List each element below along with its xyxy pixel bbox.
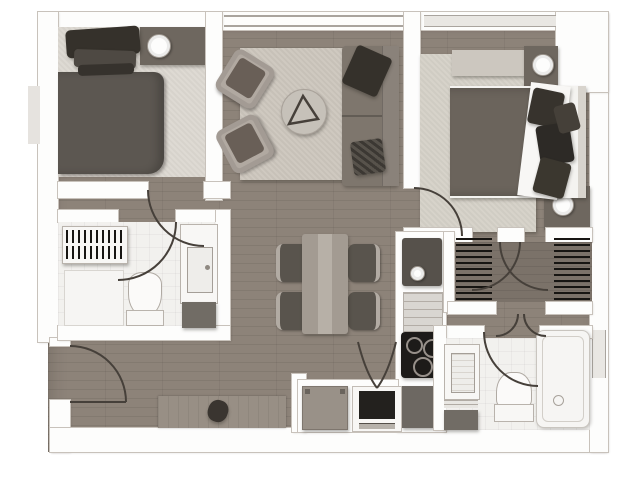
bathroom-2-window	[592, 330, 606, 378]
cooktop-burner	[406, 337, 423, 354]
bedroom-1-bolster-pillow	[78, 63, 134, 76]
bathroom-2-vanity	[444, 344, 480, 400]
wardrobe-rail-hangers	[66, 246, 122, 259]
dining-table	[302, 234, 348, 334]
oven-door	[359, 391, 395, 419]
floor-plan	[0, 0, 640, 484]
bedroom-1-bottom-wall	[58, 182, 148, 198]
bathtub-inner	[542, 336, 584, 422]
bedroom-2-bottom-wall-mid	[498, 228, 524, 242]
oven-vent	[359, 423, 395, 429]
bathtub	[536, 330, 590, 428]
bedroom-1-bottom-wall-stub	[204, 182, 230, 198]
bathroom-2-dark-mat	[444, 410, 478, 430]
bathroom-2-shelf	[444, 400, 478, 408]
bathroom-1-right-wall	[216, 210, 230, 340]
outer-wall-notch-top-right	[556, 12, 608, 92]
wall-bedroom1-living	[206, 12, 222, 200]
outer-wall-notch-left	[28, 86, 40, 144]
bathroom-2-sink	[451, 353, 475, 393]
bathroom-1-dark-mat	[182, 302, 216, 328]
bedroom-2-headboard	[578, 86, 586, 198]
bathroom-1-faucet	[205, 265, 210, 270]
bedroom-2-window	[424, 15, 556, 27]
bedroom-2-table-lamp-top	[532, 54, 554, 76]
bathroom-1-top-wall	[58, 210, 118, 222]
closet-hanging-rail-left	[456, 238, 492, 300]
armchair-seat	[224, 57, 266, 100]
kitchen-faucet	[410, 266, 425, 281]
cooktop-burner	[413, 357, 433, 377]
bathroom-2-toilet-tank	[494, 404, 534, 422]
bedroom-1-bed-duvet	[58, 72, 164, 174]
closet-bottom-wall-left	[448, 302, 496, 314]
sofa-cushion-seam	[342, 115, 382, 117]
washer-hinge	[340, 389, 345, 394]
bathtub-drain	[553, 395, 564, 406]
bathroom-1-bottom-wall	[58, 326, 230, 340]
bedroom-1-table-lamp	[147, 34, 171, 58]
bathroom-1-vanity	[180, 224, 218, 304]
dining-chair	[348, 244, 380, 282]
armchair-seat	[224, 122, 266, 164]
closet-hanging-rail-right	[554, 238, 590, 300]
outer-wall-left	[38, 12, 58, 342]
washing-machine	[302, 386, 348, 430]
dining-area	[270, 234, 380, 334]
oven-unit	[352, 386, 402, 432]
washer-hinge	[305, 389, 310, 394]
round-coffee-table	[281, 89, 327, 135]
bathroom-1-top-wall-right	[176, 210, 216, 222]
bathroom-1-toilet-tank	[126, 310, 164, 326]
closet-bottom-wall-right	[546, 302, 592, 314]
sofa-checkered-cushion	[350, 138, 386, 176]
bathroom-1-wardrobe	[62, 226, 128, 264]
dining-table-runner	[318, 234, 332, 334]
dining-chair	[348, 292, 380, 330]
living-room-window	[224, 15, 406, 27]
closet-left-wall	[444, 232, 454, 312]
wall-living-bedroom2	[404, 12, 420, 188]
bathroom-1-sink	[187, 247, 213, 293]
bedroom-2-dresser	[452, 50, 530, 76]
bathroom-1-shower	[64, 270, 124, 326]
wardrobe-rail-hangers	[66, 230, 122, 243]
